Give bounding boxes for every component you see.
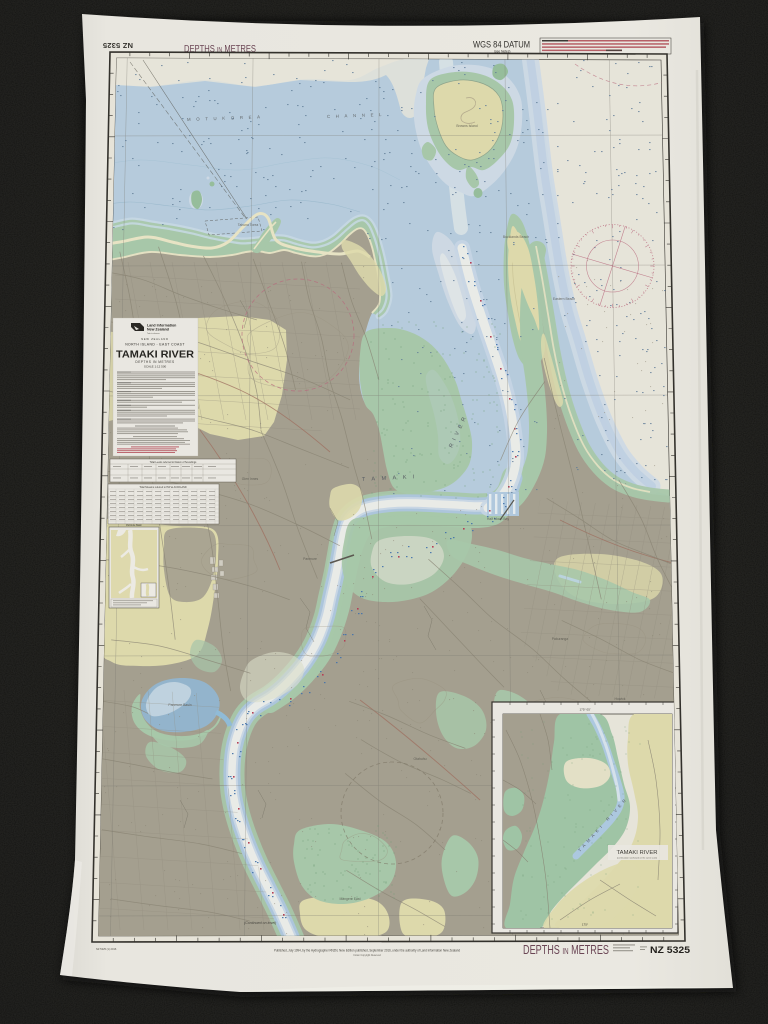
svg-text:DEPTHS IN METRES: DEPTHS IN METRES (523, 943, 609, 957)
svg-text:NZ 5325 (1) 2016: NZ 5325 (1) 2016 (96, 947, 117, 951)
svg-text:Crown Copyright Reserved: Crown Copyright Reserved (353, 954, 381, 957)
svg-text:Published, July 1994, by the H: Published, July 1994, by the Hydrographe… (274, 949, 460, 953)
svg-text:NZ 5325: NZ 5325 (650, 945, 691, 956)
svg-text:NZ 5325: NZ 5325 (103, 41, 133, 50)
